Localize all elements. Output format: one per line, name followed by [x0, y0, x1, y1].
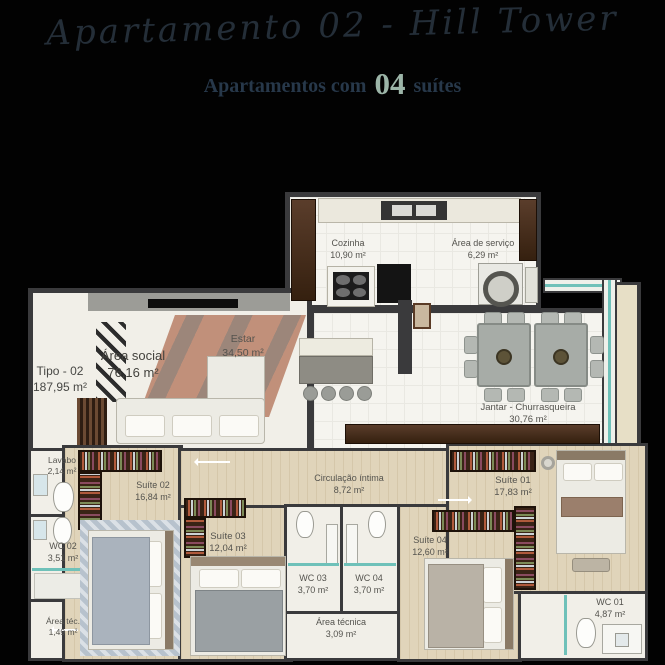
stove-counter: [327, 266, 375, 307]
wc04-toilet-icon: [368, 511, 386, 538]
wardrobe-suite04-side: [514, 506, 536, 590]
wc04-vanity: [346, 524, 358, 564]
washer-icon: [478, 263, 523, 305]
centerpiece-icon: [553, 349, 569, 365]
door-arrow-icon: [196, 461, 230, 463]
room-label-wc01: WC 014,87 m²: [595, 597, 626, 620]
dining-chair: [590, 336, 604, 354]
bar-stool: [357, 386, 372, 401]
wc03-shower-glass: [288, 563, 339, 566]
dining-chair: [590, 360, 604, 378]
wc02-toilet-icon: [53, 517, 72, 544]
centerpiece-icon: [496, 349, 512, 365]
cooktop-icon: [333, 272, 369, 300]
floorplan-page: Apartamento 02 - Hill Tower Apartamentos…: [0, 0, 665, 665]
slat-panel: [77, 398, 107, 445]
room-label-circulacao: Circulação íntima8,72 m²: [314, 473, 384, 496]
kitchen-tall-cabinet: [291, 199, 316, 301]
room-label-estar: Estar34,50 m²: [222, 333, 263, 360]
room-label-jantar: Jantar - Churrasqueira30,76 m²: [480, 402, 575, 427]
sofa-chaise: [207, 356, 265, 402]
sideboard: [345, 424, 600, 444]
dining-chair: [464, 336, 478, 354]
room-label-suite04: Suíte 0412,60 m²: [412, 535, 448, 558]
room-label-suite03: Suíte 0312,04 m²: [209, 531, 247, 556]
wardrobe-suite03-side: [184, 518, 206, 558]
handwritten-title: Apartamento 02 - Hill Tower: [0, 0, 665, 55]
bed-suite04: [424, 558, 514, 650]
bed-bench: [572, 558, 610, 572]
wc02-sink-icon: [33, 520, 47, 540]
lavabo-sink-icon: [33, 474, 48, 496]
bar-stool: [321, 386, 336, 401]
wardrobe-suite04: [432, 510, 514, 532]
wc03-vanity: [326, 524, 338, 564]
room-label-cozinha: Cozinha10,90 m²: [330, 238, 366, 261]
bed-suite02: [88, 530, 174, 650]
room-label-wc03: WC 033,70 m²: [298, 573, 329, 596]
room-label-area-tecnica: Área técnica3,09 m²: [316, 617, 366, 640]
dining-table: [477, 323, 531, 387]
room-label-wc02: WC 023,51 m²: [48, 541, 79, 564]
wardrobe-suite01: [450, 450, 536, 472]
dining-chair: [484, 388, 502, 402]
wc04-shower-glass: [344, 563, 396, 566]
room-label-suite01: Suíte 0117,83 m²: [494, 475, 532, 500]
tv-icon: [148, 299, 238, 308]
room-label-area-social: Área social76,16 m²: [101, 348, 165, 382]
room-label-area-servico: Área de serviço6,29 m²: [452, 238, 515, 261]
bar-stool: [303, 386, 318, 401]
subtitle-suffix: suítes: [413, 75, 461, 97]
bar-counter-base: [299, 356, 373, 384]
room-label-lavabo: Lavabo2,14 m²: [48, 455, 77, 477]
room-label-area-tec: Área téc.1,49 m²: [46, 616, 80, 638]
kitchen-island-dark: [377, 264, 411, 303]
bed-suite01: [556, 450, 626, 554]
wc03-toilet-icon: [296, 511, 314, 538]
laundry-tank: [525, 267, 538, 303]
subtitle-suite-count: 04: [371, 66, 408, 101]
window-right: [602, 278, 617, 452]
bar-stool: [339, 386, 354, 401]
wc01-shower-glass: [564, 595, 567, 655]
door-arrow-icon: [438, 499, 470, 501]
bed-suite03: [190, 556, 286, 656]
dining-chair: [507, 388, 525, 402]
dining-chair: [464, 360, 478, 378]
sofa: [116, 398, 265, 444]
sink-icon: [381, 201, 447, 220]
dining-chair: [541, 388, 559, 402]
dining-table: [534, 323, 588, 387]
sconce-icon: [541, 456, 555, 470]
wc01-toilet-icon: [576, 618, 596, 648]
bar-counter-top: [299, 338, 373, 356]
unit-type-label: Tipo - 02187,95 m²: [33, 364, 87, 395]
wc01-vanity: [602, 624, 642, 654]
service-cabinet: [519, 199, 537, 261]
wall-stub-kitchen: [398, 300, 412, 374]
dining-chair: [564, 388, 582, 402]
curtain-strip: [617, 282, 641, 448]
lavabo-toilet-icon: [53, 482, 74, 512]
wardrobe-suite02: [78, 450, 162, 472]
room-label-suite02: Suíte 0216,84 m²: [135, 480, 171, 503]
wall-art: [413, 303, 431, 329]
wardrobe-suite03: [184, 498, 246, 518]
page-subtitle: Apartamentos com 04 suítes: [0, 66, 665, 102]
subtitle-prefix: Apartamentos com: [204, 75, 367, 97]
room-label-wc04: WC 043,70 m²: [354, 573, 385, 596]
